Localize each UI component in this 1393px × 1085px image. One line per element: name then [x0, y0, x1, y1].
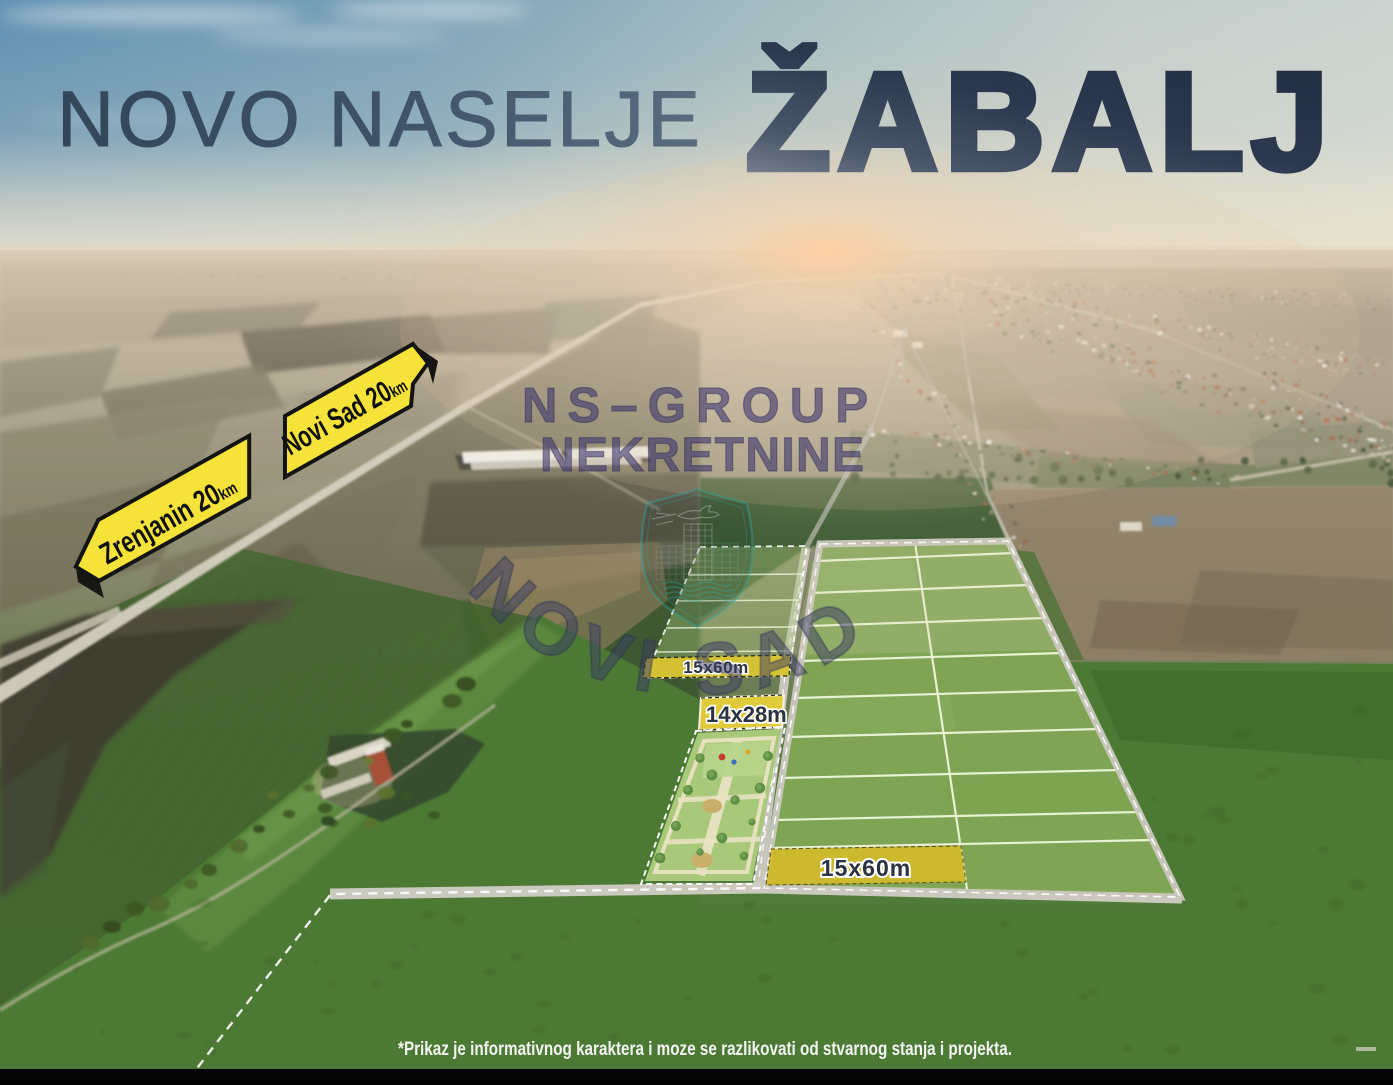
- svg-text:*Prikaz je informativnog karak: *Prikaz je informativnog karaktera i moz…: [398, 1039, 1012, 1060]
- svg-text:NS–GROUP: NS–GROUP: [522, 379, 878, 433]
- svg-text:ŽABALJ: ŽABALJ: [746, 45, 1332, 199]
- svg-text:NEKRETNINE: NEKRETNINE: [540, 429, 868, 482]
- svg-text:15x60m: 15x60m: [821, 855, 911, 881]
- svg-text:NOVO NASELJE: NOVO NASELJE: [57, 74, 708, 163]
